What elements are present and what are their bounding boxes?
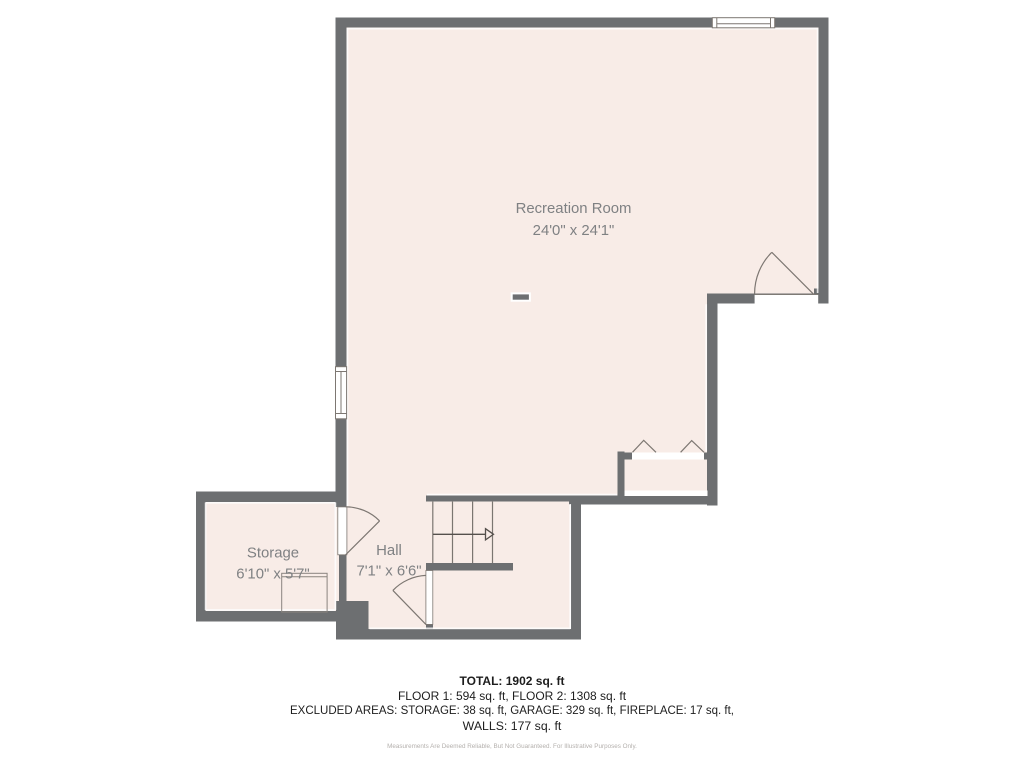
svg-text:6'10" x 5'7": 6'10" x 5'7" <box>236 567 309 583</box>
svg-text:Recreation Room: Recreation Room <box>516 201 632 217</box>
svg-text:7'1" x 6'6": 7'1" x 6'6" <box>356 564 421 580</box>
svg-text:24'0" x 24'1": 24'0" x 24'1" <box>533 223 615 239</box>
svg-text:Hall: Hall <box>376 543 402 559</box>
svg-text:Storage: Storage <box>247 546 299 562</box>
